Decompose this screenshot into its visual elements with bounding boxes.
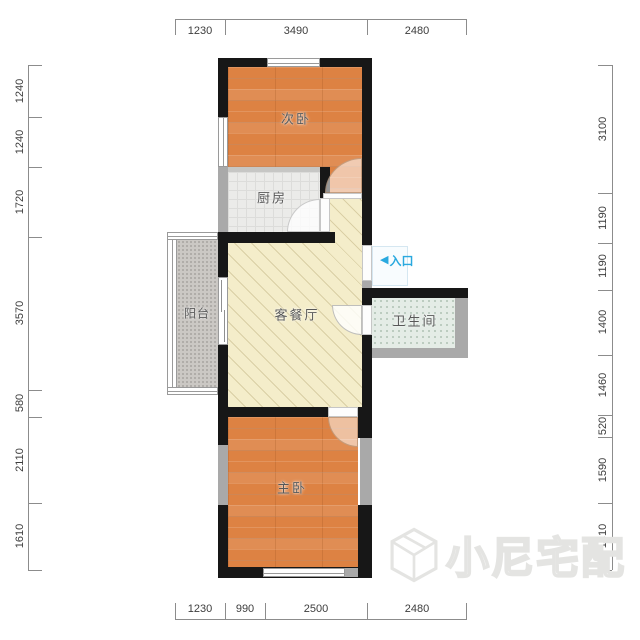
wall-balcony-right-lower bbox=[218, 345, 228, 407]
dim-label: 1400 bbox=[597, 310, 609, 334]
dim-label: 1230 bbox=[188, 25, 212, 37]
dim-label: 1190 bbox=[597, 254, 609, 278]
dim-tick bbox=[28, 237, 42, 238]
dim-tick bbox=[598, 65, 612, 66]
room-label-balcony: 阳台 bbox=[184, 305, 210, 322]
dim-label: 3570 bbox=[14, 301, 26, 325]
dim-tick bbox=[265, 603, 266, 619]
wall-bathroom-bottom bbox=[372, 348, 455, 358]
dim-label: 3100 bbox=[597, 117, 609, 141]
entrance-text: 入口 bbox=[389, 252, 413, 269]
dim-tick bbox=[367, 603, 368, 619]
dim-tick bbox=[28, 570, 42, 571]
wall-right-mid2 bbox=[362, 335, 372, 417]
wall-bedroom1-right-a bbox=[358, 417, 372, 438]
wall-bedroom1-left-b bbox=[218, 445, 228, 505]
brand-cube-icon bbox=[388, 527, 440, 583]
dim-tick bbox=[466, 603, 467, 619]
window-bedroom1-bottom bbox=[263, 568, 345, 577]
room-label-bedroom1: 主卧 bbox=[277, 478, 307, 497]
threshold-bathroom bbox=[362, 305, 372, 335]
dim-tick bbox=[466, 19, 467, 35]
dim-label: 1190 bbox=[597, 206, 609, 230]
dim-label: 1240 bbox=[14, 79, 26, 103]
watermark-text: 小尼宅配 bbox=[446, 524, 626, 586]
dim-tick bbox=[598, 437, 612, 438]
balcony-window-left bbox=[167, 232, 177, 395]
dim-label: 580 bbox=[14, 394, 26, 412]
dim-tick bbox=[28, 390, 42, 391]
dim-label: 1460 bbox=[597, 373, 609, 397]
wall-bedroom1-left-a bbox=[218, 417, 228, 445]
wall-right-mid1 bbox=[362, 298, 372, 305]
wall-bedroom1-top bbox=[218, 407, 328, 417]
dim-tick bbox=[367, 19, 368, 35]
watermark: 小尼宅配 bbox=[388, 524, 626, 586]
window-bedroom2-left bbox=[218, 117, 228, 167]
threshold-bedroom1 bbox=[328, 407, 358, 417]
window-bedroom2-top bbox=[267, 58, 320, 67]
dim-tick bbox=[598, 503, 612, 504]
threshold-kitchen bbox=[320, 198, 330, 232]
entrance-arrow-icon: ◀ bbox=[380, 255, 388, 266]
dim-line-right bbox=[612, 65, 613, 570]
dim-tick bbox=[28, 417, 42, 418]
sill-bedroom1-bottom bbox=[345, 568, 358, 577]
wall-living-top bbox=[218, 232, 335, 243]
dim-line-left bbox=[28, 65, 29, 570]
room-label-bedroom2: 次卧 bbox=[281, 109, 311, 128]
wall-bedroom1-right-b bbox=[360, 438, 372, 505]
room-label-kitchen: 厨房 bbox=[257, 188, 287, 207]
dim-label: 1720 bbox=[14, 190, 26, 214]
threshold-entrance bbox=[362, 245, 372, 281]
dim-label: 2110 bbox=[14, 448, 26, 472]
dim-tick bbox=[598, 193, 612, 194]
dim-line-top bbox=[175, 19, 467, 20]
balcony-window-top bbox=[167, 232, 218, 240]
balcony-window-bottom bbox=[167, 387, 218, 395]
dim-tick bbox=[598, 290, 612, 291]
dim-tick bbox=[175, 19, 176, 35]
dim-label: 3490 bbox=[284, 25, 308, 37]
dim-tick bbox=[225, 603, 226, 619]
dim-tick bbox=[598, 243, 612, 244]
dim-tick bbox=[28, 167, 42, 168]
dim-label: 1230 bbox=[188, 603, 212, 615]
wall-bedroom1-top-corner bbox=[358, 407, 372, 417]
dim-label: 1590 bbox=[597, 458, 609, 482]
dim-tick bbox=[175, 603, 176, 619]
entrance-label: ◀ 入口 bbox=[380, 252, 413, 269]
dim-tick bbox=[28, 503, 42, 504]
dim-line-bottom bbox=[175, 619, 467, 620]
dim-label: 1610 bbox=[14, 524, 26, 548]
wall-left-kitchen bbox=[218, 167, 228, 232]
dim-label: 990 bbox=[236, 603, 254, 615]
wall-balcony-right-upper bbox=[218, 243, 228, 277]
room-label-bathroom: 卫生间 bbox=[392, 311, 437, 330]
dim-label: 2480 bbox=[405, 25, 429, 37]
balcony-sliding-door bbox=[218, 277, 228, 345]
wall-bathroom-top bbox=[362, 288, 468, 298]
wall-bathroom-right bbox=[455, 298, 468, 358]
dim-tick bbox=[28, 65, 42, 66]
dim-label: 2480 bbox=[405, 603, 429, 615]
dim-label: 2500 bbox=[304, 603, 328, 615]
wall-left-upper bbox=[218, 58, 228, 117]
dim-tick bbox=[598, 355, 612, 356]
dim-tick bbox=[225, 19, 226, 35]
wall-right-upper bbox=[362, 58, 372, 245]
dim-label: 520 bbox=[597, 417, 609, 435]
dim-tick bbox=[28, 117, 42, 118]
floor-plan: ◀ 入口 次卧 厨房 客餐厅 阳台 卫生间 主卧 1230 3490 2480 … bbox=[0, 0, 640, 640]
dim-label: 1240 bbox=[14, 130, 26, 154]
room-label-living: 客餐厅 bbox=[274, 305, 319, 324]
